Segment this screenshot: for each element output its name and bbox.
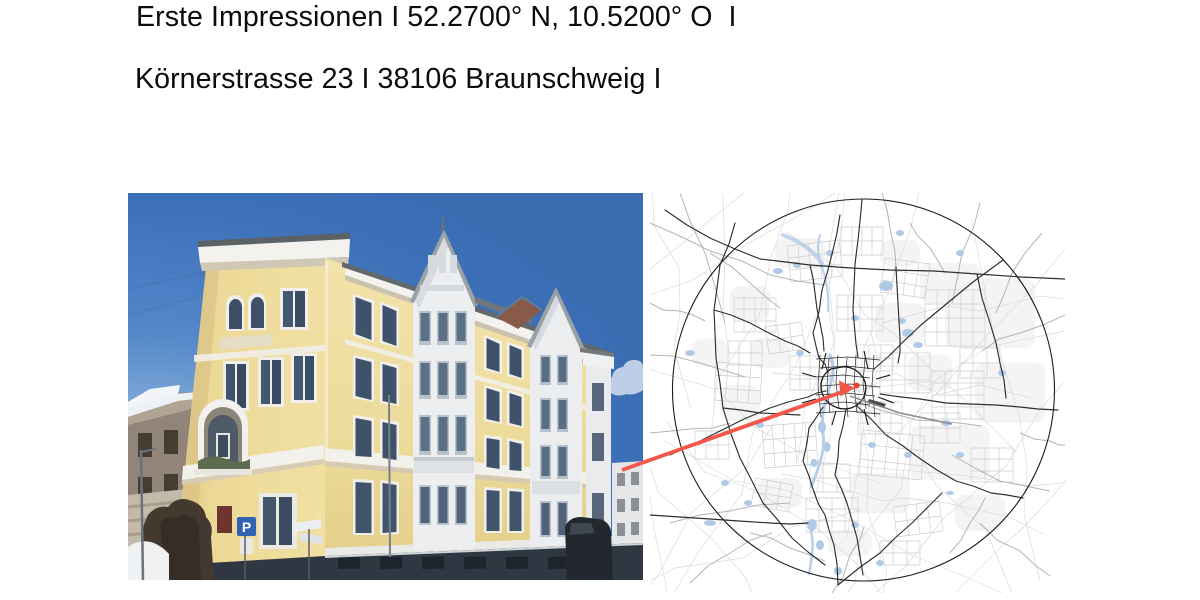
svg-text:P: P [242,519,251,535]
